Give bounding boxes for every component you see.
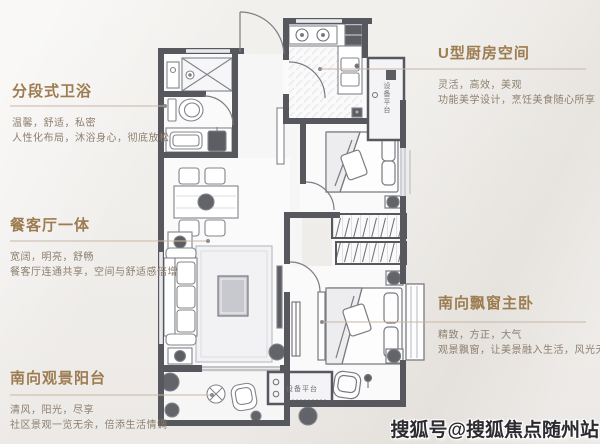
annotation-line: 功能美学设计，烹饪美食随心所享 [438,93,596,108]
plant-icon [299,407,317,425]
dining-chair [205,168,225,184]
armchair [332,370,361,399]
floor-lamp-icon [365,375,372,382]
annotation-balcony: 南向观景阳台 清风，阳光，尽享 社区景观一览无余，倍添生活情调 [10,371,168,433]
leader-dot [206,239,210,243]
dining-chair [179,168,199,184]
faucet-unit [208,131,226,151]
annotation-title: 南向飘窗主卧 [438,296,600,312]
annotation-title: 分段式卫浴 [12,84,170,100]
equipment-platform-bottom-label: 设备平台 [286,384,318,394]
sofa-cushion [177,262,195,284]
annotation-line: 清风，阳光，尽享 [10,403,168,418]
coffee-table [218,276,248,316]
plant-icon [387,196,399,208]
annotation-line: 精致，方正，大气 [438,328,600,343]
floorplan-poster: 分段式卫浴 温馨，舒适，私密 人性化布局，沐浴身心，彻底放松 U型厨房空间 灵活… [0,0,600,444]
annotation-line: 灵活，高效，美观 [438,78,596,93]
plant-icon [388,350,401,363]
tv-console [277,266,282,328]
annotation-line: 温馨，舒适，私密 [12,116,170,131]
pillow [384,293,398,323]
leader-dot [318,67,322,71]
watermark: 搜狐号@搜狐焦点随州站 [390,415,599,442]
annotation-line: 人性化布局，沐浴身心，彻底放松 [12,131,170,146]
annotation-line: 观景飘窗，让美景融入生活，风光无限 [438,343,600,358]
lamp-icon [175,351,186,362]
leader-dot [210,393,214,397]
equipment-platform-top-label: 设备平台 [381,82,391,114]
annotation-line: 宽阔，明亮，舒畅 [10,250,178,265]
sofa-cushion [177,310,195,332]
plant-icon [269,344,285,360]
annotation-line: 社区景观一览无余，倍添生活情调 [10,418,168,433]
annotation-kitchen: U型厨房空间 灵活，高效，美观 功能美学设计，烹饪美食随心所享 [438,46,596,108]
sofa-armrest [166,334,196,345]
annotation-title: U型厨房空间 [438,46,596,62]
plant-icon [198,194,214,210]
annotation-bathroom: 分段式卫浴 温馨，舒适，私密 人性化布局，沐浴身心，彻底放松 [12,84,170,146]
shoe-cabinet [277,108,284,164]
annotation-master-bedroom: 南向飘窗主卧 精致，方正，大气 观景飘窗，让美景融入生活，风光无限 [438,296,600,358]
annotation-title: 南向观景阳台 [10,371,168,387]
bed-bench [318,292,325,360]
annotation-title: 餐客厅一体 [10,218,178,234]
pillow [382,161,395,185]
wardrobes [332,214,406,264]
balcony-chair [230,382,258,412]
sofa-cushion [177,286,195,308]
dining-chair [205,220,225,236]
annotation-living-dining: 餐客厅一体 宽阔，明亮，舒畅 餐客厅连通共享，空间与舒适感倍增 [10,218,178,280]
annotation-line: 餐客厅连通共享，空间与舒适感倍增 [10,265,178,280]
plant-icon [388,272,401,285]
entry-door-arc [240,12,284,54]
plant-icon [251,411,261,421]
leader-dot [320,320,324,324]
